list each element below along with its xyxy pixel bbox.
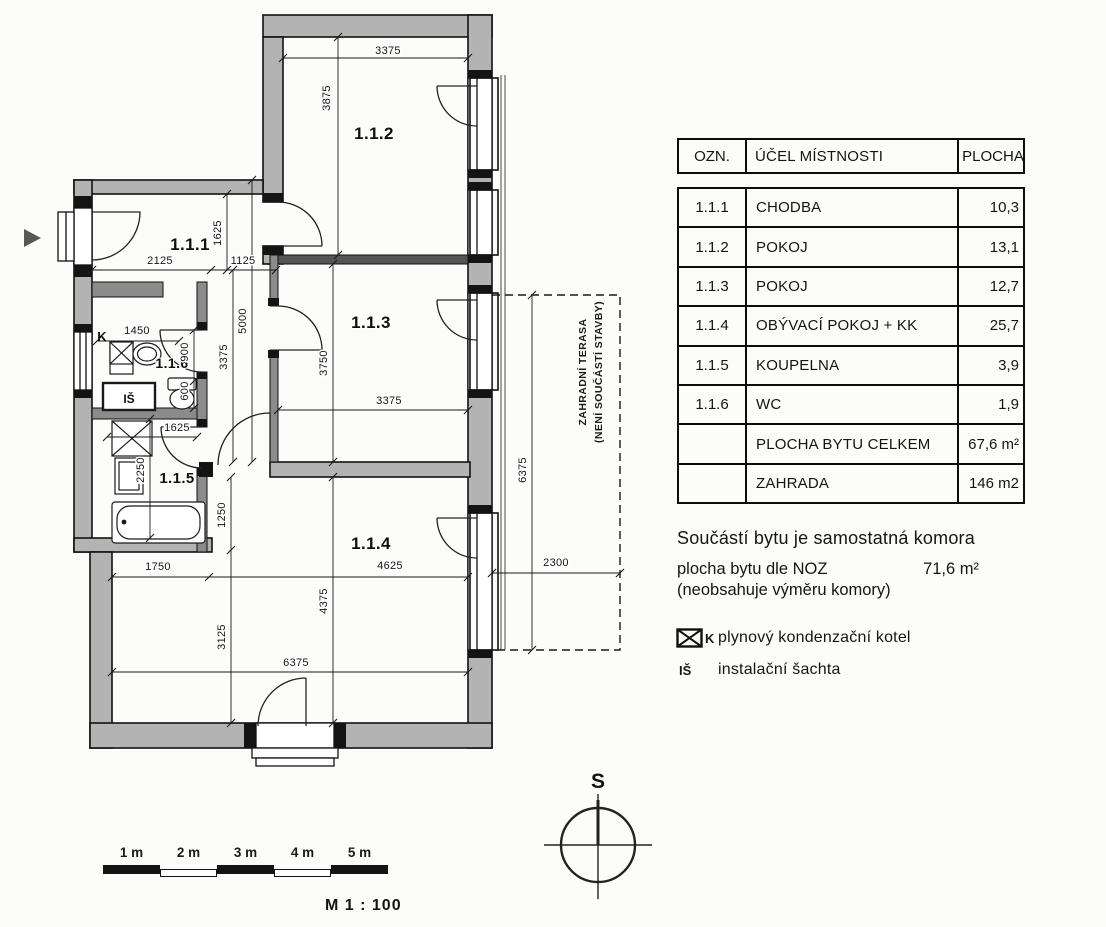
table-row: ZAHRADA146 m2 [679,463,1023,502]
note-noz-value: 71,6 m² [923,560,979,579]
dimension-label: 1250 [216,502,228,528]
dimension-label: 4375 [318,588,330,614]
gas-boiler-legend-icon [676,628,703,648]
legend-row-shaft: IŠ instalační šachta [676,658,911,682]
legend-key-boiler: K [676,628,718,648]
room-table: OZN. ÚČEL MÍSTNOSTI PLOCHA 1.1.1CHODBA10… [677,138,1025,504]
table-row: 1.1.2POKOJ13,1 [679,226,1023,265]
bathtub-icon [112,502,205,543]
scale-tick-label: 3 m [217,845,274,860]
legend-text-shaft: instalační šachta [718,661,841,679]
gas-boiler-icon [110,342,133,374]
floorplan-drawing: ZAHRADNÍ TERASA (NENÍ SOUČÁSTÍ STAVBY) 1… [0,0,670,780]
table-row: 1.1.4OBÝVACÍ POKOJ + KK25,7 [679,305,1023,344]
scale-tick-label: 4 m [274,845,331,860]
room-table-header: OZN. ÚČEL MÍSTNOSTI PLOCHA [677,138,1025,174]
table-cell-ozn: 1.1.1 [679,189,745,226]
room-label: 1.1.2 [354,124,394,143]
table-row: 1.1.5KOUPELNA3,9 [679,345,1023,384]
table-cell-ozn: 1.1.4 [679,307,745,344]
dimension-label: 3875 [321,85,333,111]
dimension-label: 600 [179,381,191,400]
table-cell-ucel: CHODBA [745,189,957,226]
table-cell-plocha: 146 m2 [957,465,1027,502]
table-row: 1.1.6WC1,9 [679,384,1023,423]
table-cell-ozn [679,425,745,462]
table-header-ozn: OZN. [679,140,745,172]
dimension-label: 1125 [231,255,256,267]
table-cell-ucel: PLOCHA BYTU CELKEM [745,425,957,462]
table-cell-plocha: 12,7 [957,268,1027,305]
dimension-label: 2300 [543,557,569,569]
legend-text-boiler: plynový kondenzační kotel [718,629,911,647]
table-row: PLOCHA BYTU CELKEM67,6 m² [679,423,1023,462]
table-cell-ucel: POKOJ [745,228,957,265]
terrace-label-line2: (NENÍ SOUČÁSTÍ STAVBY) [592,301,605,443]
scale-bar-segments [103,865,388,880]
table-cell-ucel: POKOJ [745,268,957,305]
dimension-label: 1450 [124,325,150,337]
legend-key-shaft: IŠ [676,663,718,678]
terrace-edge-lines [501,75,505,650]
room-table-body: 1.1.1CHODBA10,31.1.2POKOJ13,11.1.3POKOJ1… [677,187,1025,504]
note-noz-row: plocha bytu dle NOZ 71,6 m² [677,560,979,579]
note-noz-detail: (neobsahuje výměru komory) [677,581,979,600]
room-label: 1.1.3 [351,313,391,332]
table-cell-plocha: 3,9 [957,347,1027,384]
room-label: 1.1.5 [159,470,194,487]
symbol-legend: K plynový kondenzační kotel IŠ instalačn… [676,626,911,690]
note-noz-label: plocha bytu dle NOZ [677,560,827,579]
scale-tick-label: 1 m [103,845,160,860]
table-cell-ozn: 1.1.3 [679,268,745,305]
table-row: 1.1.3POKOJ12,7 [679,266,1023,305]
dimension-label: 6375 [517,457,529,483]
room-label: 1.1.1 [170,235,210,254]
exterior-walls [74,15,492,748]
table-cell-plocha: 10,3 [957,189,1027,226]
table-row: 1.1.1CHODBA10,3 [679,189,1023,226]
dimension-label: 4625 [377,560,403,572]
washing-machine-icon [112,421,152,456]
legend-symbol-k: K [705,631,714,646]
dimension-label: 3750 [318,350,330,376]
dimension-label: 1750 [145,561,171,573]
legend-symbol-is: IŠ [679,663,691,678]
equipment-label: IŠ [123,391,134,406]
dimension-label: 3375 [375,45,401,57]
table-cell-plocha: 1,9 [957,386,1027,423]
table-cell-ucel: KOUPELNA [745,347,957,384]
compass-north-label: S [591,770,605,793]
dimension-label: 1625 [212,220,224,246]
dimension-label: 1625 [164,422,190,434]
terrace-label-line1: ZAHRADNÍ TERASA [576,319,589,426]
table-cell-ozn: 1.1.5 [679,347,745,384]
legend-row-boiler: K plynový kondenzační kotel [676,626,911,650]
dimension-label: 3125 [216,624,228,650]
scale-bar: 1 m2 m3 m4 m5 m [103,845,388,880]
scale-tick-label: 2 m [160,845,217,860]
table-cell-ozn: 1.1.2 [679,228,745,265]
table-cell-ucel: OBÝVACÍ POKOJ + KK [745,307,957,344]
note-komora: Součástí bytu je samostatná komora [677,528,979,549]
table-cell-plocha: 67,6 m² [957,425,1027,462]
compass: S [528,758,668,908]
dimension-label: 3375 [376,395,402,407]
table-cell-ozn: 1.1.6 [679,386,745,423]
equipment-label: K [97,329,107,344]
dimension-label: 900 [179,342,191,361]
scale-tick-label: 5 m [331,845,388,860]
table-header-ucel: ÚČEL MÍSTNOSTI [745,140,957,172]
notes-block: Součástí bytu je samostatná komora ploch… [677,528,979,600]
room-label: 1.1.4 [351,534,391,553]
dimension-label: 5000 [237,308,249,334]
dimension-label: 3375 [218,344,230,370]
dimension-label: 2250 [135,457,147,483]
scale-ratio-label: M 1 : 100 [325,897,402,915]
table-cell-plocha: 13,1 [957,228,1027,265]
table-cell-ozn [679,465,745,502]
table-cell-ucel: ZAHRADA [745,465,957,502]
dimension-label: 2125 [147,255,173,267]
fixtures [103,342,205,543]
table-header-plocha: PLOCHA [957,140,1027,172]
dimension-label: 6375 [283,657,309,669]
floorplan-page: ZAHRADNÍ TERASA (NENÍ SOUČÁSTÍ STAVBY) 1… [0,0,1106,927]
table-cell-ucel: WC [745,386,957,423]
scale-bar-labels: 1 m2 m3 m4 m5 m [103,845,388,860]
table-cell-plocha: 25,7 [957,307,1027,344]
